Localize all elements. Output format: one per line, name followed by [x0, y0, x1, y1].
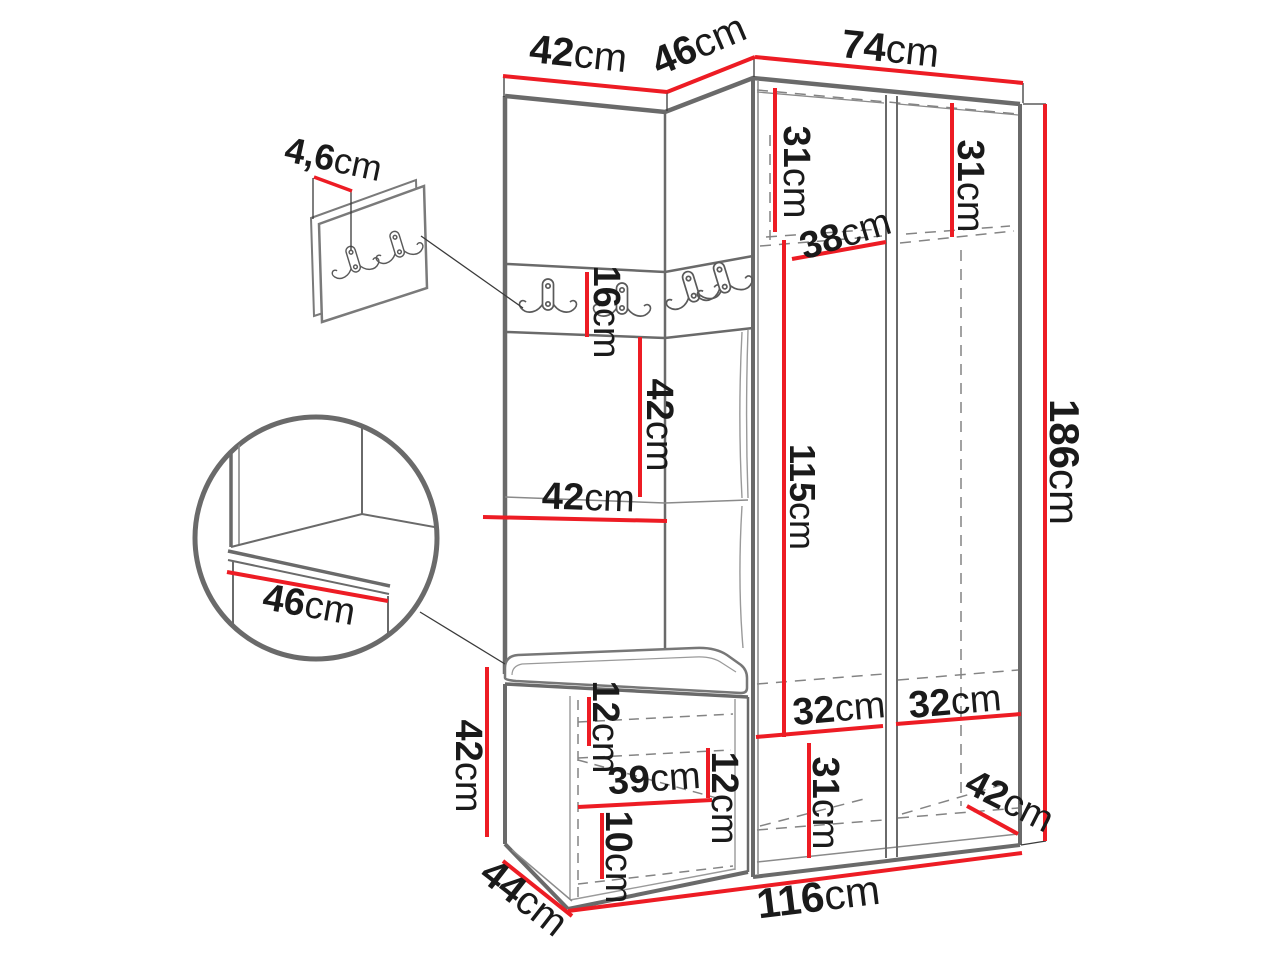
dim-label-lower-right-comp: 32cm: [907, 677, 1003, 727]
dim-label-bench-height: 42cm: [447, 720, 489, 813]
dim-label-upper-shelf-right: 31cm: [949, 140, 991, 233]
dim-label-door-section-height: 115cm: [782, 444, 823, 550]
dim-label-niche-width: 42cm: [541, 475, 635, 520]
dim-label-bench-inner-lower: 10cm: [597, 811, 639, 904]
dim-label-lower-left-comp: 32cm: [791, 684, 887, 734]
diagram-page: 42cm 46cm 74cm 4,6cm 31cm 31cm 38cm 16cm…: [0, 0, 1280, 960]
dim-label-upper-shelf-left: 31cm: [775, 126, 817, 219]
dim-label-hook-strip-height: 16cm: [585, 266, 627, 359]
dim-label-niche-upper-height: 42cm: [638, 379, 680, 472]
furniture-dimension-diagram: 42cm 46cm 74cm 4,6cm 31cm 31cm 38cm 16cm…: [0, 0, 1280, 960]
dim-label-bench-inner-right: 12cm: [703, 752, 745, 845]
dim-label-top-width-corner: 46cm: [645, 6, 752, 85]
dim-label-panel-thickness: 4,6cm: [281, 129, 385, 189]
dim-label-bench-inner-width: 39cm: [606, 755, 702, 803]
hook-panel-detail: [311, 180, 427, 322]
dim-label-total-height: 186cm: [1041, 399, 1088, 525]
circle-leader-line: [420, 612, 505, 664]
dim-label-lower-comp-height: 31cm: [804, 757, 846, 850]
dim-line-top-width-left: [503, 76, 667, 92]
dim-label-top-width-left: 42cm: [527, 27, 629, 81]
